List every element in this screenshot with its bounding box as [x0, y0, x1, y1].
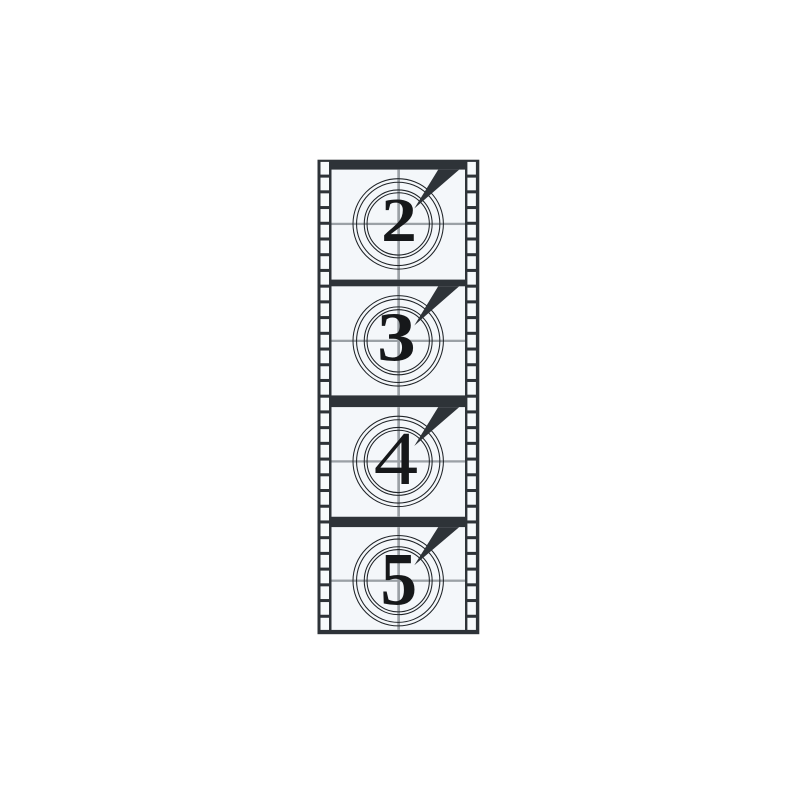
svg-text:4: 4: [374, 416, 418, 501]
svg-text:2: 2: [381, 185, 417, 255]
svg-text:3: 3: [377, 297, 415, 375]
svg-text:5: 5: [380, 539, 417, 622]
